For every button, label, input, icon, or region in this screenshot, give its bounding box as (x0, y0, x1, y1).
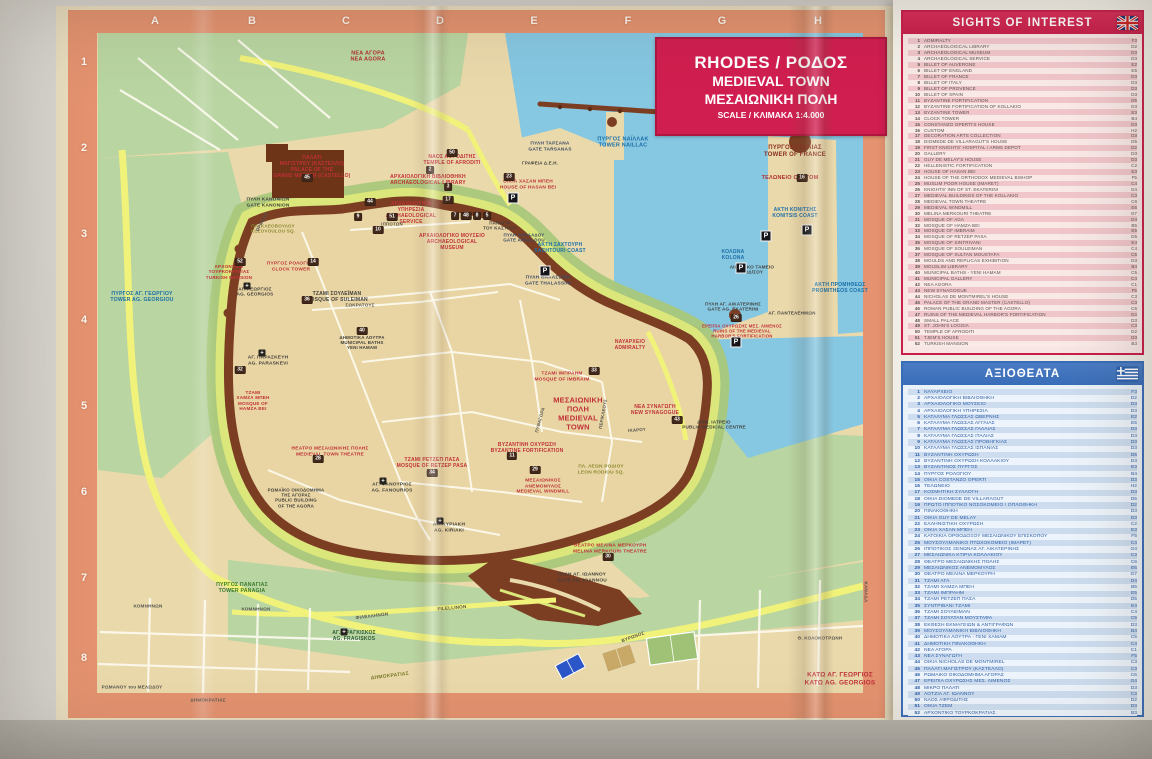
legend-item-name: SMALL PALACE (924, 318, 1124, 323)
legend-item: 26 KNIGHTS' INN OF ST. EKATERINI G4 (908, 186, 1137, 192)
legend-item-number: 7 (908, 74, 920, 79)
legend-item-name: GALLERY (924, 151, 1124, 156)
parking-icon (761, 231, 772, 242)
legend-item-name: ΡΩΜΑΪΚΟ ΟΙΚΟΔΟΜΗΜΑ ΑΓΟΡΑΣ (924, 673, 1124, 678)
legend-item: 27 ΜΕΣΑΙΩΝΙΚΑ ΚΤΙΡΙΑ ΚΟΛΛΑΚΙΟΥ C3 (908, 553, 1137, 559)
legend-item-gridref: D3 (1124, 56, 1137, 61)
sight-number-badge: 14 (308, 259, 318, 266)
legend-item-name: ΚΑΤΑΛΥΜΑ ΓΛΩΣΣΑΣ ΑΓΓΛΙΑΣ (924, 421, 1124, 426)
legend-item: 40 ΔΗΜΟΤΙΚΑ ΛΟΥΤΡΑ - ΓΕΝΙ ΧΑΜΑΜ C5 (908, 635, 1137, 641)
parking-icon (731, 337, 742, 348)
legend-item-name: MELINA MERKOURI THEATRE (924, 211, 1124, 216)
legend-item: 46 ROMAN PUBLIC BUILDING OF THE AGORA C6 (908, 305, 1137, 311)
church-icon (437, 518, 444, 525)
legend-item: 38 ΕΚΘΕΣΗ ΕΚΜΑΓΕΙΩΝ & ΑΝΤΙΓΡΑΦΩΝ D3 (908, 622, 1137, 628)
legend-item-number: 5 (908, 415, 920, 420)
grid-letter: F (625, 15, 632, 27)
legend-item-gridref: D3 (1124, 80, 1137, 85)
legend-item-name: ΔΗΜΟΤΙΚΑ ΛΟΥΤΡΑ - ΓΕΝΙ ΧΑΜΑΜ (924, 635, 1124, 640)
map-scale: SCALE / ΚΛΙΜΑΚΑ 1:4.000 (718, 110, 825, 121)
legend-item-name: RUINS OF THE MEDIEVAL HARBOR'S FORTIFICA… (924, 312, 1124, 317)
legend-item-number: 29 (908, 566, 920, 571)
legend-item-number: 51 (908, 335, 920, 340)
legend-item-number: 19 (908, 503, 920, 508)
legend-item-gridref: E6 (1124, 205, 1137, 210)
legend-item-number: 9 (908, 86, 920, 91)
legend-item-gridref: D3 (1124, 50, 1137, 55)
legend-item: 44 NICHOLAS DE MONTMIREL'S HOUSE C3 (908, 293, 1137, 299)
legend-item-name: ΟΙΚΙΑ ΤΖΕΜ (924, 704, 1124, 709)
legend-item: 35 ΣΥΝΤΡΙΒΑΝΙ ΤΖΑΜΙ E4 (908, 603, 1137, 609)
photo-of-folded-map: ABCDEFGH 12345678 RHODES / ΡΟΔΟΣ MEDIEVA… (0, 0, 1152, 759)
legend-item: 48 SMALL PALACE D3 (908, 317, 1137, 323)
legend-item: 33 ΤΖΑΜΙ ΙΜΠΡΑΗΜ E5 (908, 591, 1137, 597)
legend-item: 36 ΤΖΑΜΙ ΣΟΥΛΕΪΜΑΝ C4 (908, 609, 1137, 615)
legend-item-number: 34 (908, 597, 920, 602)
grid-number: 2 (81, 142, 87, 154)
legend-item-number: 32 (908, 585, 920, 590)
legend-item-name: ΚΑΤΑΛΥΜΑ ΓΛΩΣΣΑΣ ΙΣΠΑΝΙΑΣ (924, 446, 1124, 451)
sight-number-badge: 34 (427, 470, 437, 477)
legend-item: 41 ΔΗΜΟΤΙΚΗ ΠΙΝΑΚΟΘΗΚΗ C4 (908, 641, 1137, 647)
legend-item-number: 48 (908, 686, 920, 691)
grid-number: 8 (81, 652, 87, 664)
legend-item-gridref: G4 (1124, 547, 1137, 552)
legend-item-gridref: B3 (1124, 711, 1137, 716)
legend-item-name: MEDIEVAL WINDMILL (924, 205, 1124, 210)
legend-item-number: 40 (908, 635, 920, 640)
legend-item-number: 51 (908, 704, 920, 709)
legend-item-name: MOSQUE OF AGA (924, 217, 1124, 222)
legend-item-gridref: D3 (1124, 74, 1137, 79)
legend-item-name: BYZANTINE TOWER (924, 110, 1124, 115)
legend-item-name: ΝΑΟΣ ΑΦΡΟΔΙΤΗΣ (924, 698, 1124, 703)
legend-item: 14 CLOCK TOWER B4 (908, 115, 1137, 121)
legend-item-name: ΟΙΚΙΑ NICHOLAS DE MONTMIREL (924, 660, 1124, 665)
legend-item-name: ΝΑΥΑΡΧΕΙΟ (924, 390, 1124, 395)
church-icon (380, 478, 387, 485)
legend-item-gridref: E3 (1124, 465, 1137, 470)
legend-item: 31 ΤΖΑΜΙ ΑΓΑ D4 (908, 578, 1137, 584)
legend-item-number: 15 (908, 478, 920, 483)
legend-item-number: 19 (908, 145, 920, 150)
legend-item-gridref: D5 (1124, 453, 1137, 458)
legend-item-gridref: D3 (1124, 623, 1137, 628)
legend-item-number: 16 (908, 484, 920, 489)
grid-number: 1 (81, 56, 87, 68)
legend-item: 43 ΝΕΑ ΣΥΝΑΓΩΓΗ F5 (908, 653, 1137, 659)
legend-item-name: MOSQUE OF RETZEP PASA (924, 234, 1124, 239)
legend-item: 2 ARCHAEOLOGICAL LIBRARY D2 (908, 44, 1137, 50)
legend-item: 28 MEDIEVAL TOWN THEATRE C6 (908, 198, 1137, 204)
legend-item-number: 28 (908, 560, 920, 565)
legend-item-gridref: D3 (1124, 459, 1137, 464)
legend-item-number: 14 (908, 472, 920, 477)
grid-number: 3 (81, 228, 87, 240)
legend-item-number: 11 (908, 453, 920, 458)
legend-item: 11 BYZANTINE FORTIFICATION D5 (908, 97, 1137, 103)
grid-letter: H (814, 15, 822, 27)
legend-item-name: ST. JOHN'S LOGGIA (924, 323, 1124, 328)
legend-item-number: 26 (908, 547, 920, 552)
legend-item: 3 ΑΡΧΑΙΟΛΟΓΙΚΟ ΜΟΥΣΕΙΟ D3 (908, 402, 1137, 408)
grid-letter: E (530, 15, 537, 27)
legend-item: 15 CONSTANZO OPERTI'S HOUSE D3 (908, 121, 1137, 127)
legend-item-name: ΟΙΚΙΑ DIOMEDE DE VILLARAGUT (924, 497, 1124, 502)
sight-number-badge: 32 (235, 367, 245, 374)
legend-item-name: ARCHAEOLOGICAL MUSEUM (924, 50, 1124, 55)
sight-number-badge: 11 (507, 453, 516, 460)
sight-number-badge: 29 (530, 467, 540, 474)
legend-item: 41 MUNICIPAL GALLERY C4 (908, 276, 1137, 282)
legend-item-number: 46 (908, 306, 920, 311)
church-icon (259, 350, 266, 357)
legend-item-gridref: C5 (1124, 270, 1137, 275)
legend-item-name: ΔΗΜΟΤΙΚΗ ΠΙΝΑΚΟΘΗΚΗ (924, 642, 1124, 647)
sight-number-badge: 28 (313, 456, 323, 463)
legend-item-gridref: B4 (1124, 472, 1137, 477)
legend-item: 6 BILLET OF ENGLAND E5 (908, 68, 1137, 74)
legend-item-gridref: G4 (1124, 312, 1137, 317)
legend-item-name: MOULDS AND REPLICAS EXHIBITION (924, 258, 1124, 263)
legend-item-gridref: B4 (1124, 629, 1137, 634)
grid-letter: G (718, 15, 727, 27)
legend-item: 1 ADMIRALTY F3 (908, 38, 1137, 44)
sight-number-badge: 43 (672, 417, 682, 424)
legend-item: 24 ΚΑΤΟΙΚΙΑ ΟΡΘΟΔΟΞΟΥ ΜΕΣΑΙΩΝΙΚΟΥ ΕΠΙΣΚΟ… (908, 534, 1137, 540)
legend-item-name: BYZANTINE FORTIFICATION OF KOLLAKIO (924, 104, 1124, 109)
legend-item-gridref: B5 (1124, 585, 1137, 590)
legend-item-number: 11 (908, 98, 920, 103)
legend-item: 33 MOSQUE OF IMBRAIM E5 (908, 228, 1137, 234)
legend-item-number: 3 (908, 50, 920, 55)
legend-item-number: 33 (908, 591, 920, 596)
legend-sights-of-interest: SIGHTS OF INTEREST 1 ADMIRALTY F3 (901, 10, 1144, 355)
legend-item-name: ΠΥΡΓΟΣ ΡΟΛΟΓΙΟΥ (924, 472, 1124, 477)
legend-item-name: ΤΖΑΜΙ ΧΑΜΖΑ ΜΠΕΗ (924, 585, 1124, 590)
sight-number-badge: 40 (357, 328, 367, 335)
legend-item: 32 ΤΖΑΜΙ ΧΑΜΖΑ ΜΠΕΗ B5 (908, 584, 1137, 590)
sight-number-badge: 44 (365, 199, 375, 206)
legend-item-number: 3 (908, 402, 920, 407)
legend-item-gridref: E3 (1124, 528, 1137, 533)
legend-item-name: MOUSLIM LIBRARY (924, 264, 1124, 269)
sight-number-badge: 2 (427, 167, 434, 174)
legend-item-gridref: B5 (1124, 223, 1137, 228)
legend-item: 29 MEDIEVAL WINDMILL E6 (908, 204, 1137, 210)
legend-item: 20 ΠΙΝΑΚΟΘΗΚΗ D3 (908, 509, 1137, 515)
legend-item-gridref: D3 (1124, 509, 1137, 514)
legend-item-name: CLOCK TOWER (924, 116, 1124, 121)
sight-number-badge: 9 (355, 214, 362, 221)
legend-item-name: ΤΖΑΜΙ ΣΟΥΛΕΪΜΑΝ (924, 610, 1124, 615)
table-surface (0, 720, 1152, 759)
legend-item-gridref: C6 (1124, 306, 1137, 311)
legend-item-number: 41 (908, 276, 920, 281)
legend-item-gridref: B4 (1124, 116, 1137, 121)
sight-number-badge: 50 (447, 150, 457, 157)
sight-number-badge: 5 (484, 213, 491, 220)
legend-item-number: 50 (908, 698, 920, 703)
legend-item: 30 ΘΕΑΤΡΟ ΜΕΛΙΝΑ ΜΕΡΚΟΥΡΗ G7 (908, 572, 1137, 578)
legend-item-gridref: C4 (1124, 610, 1137, 615)
legend-item: 30 MELINA MERKOURI THEATRE G7 (908, 210, 1137, 216)
legend-item: 19 FIRST KNIGHTS' HOSPITAL / ARMS DEPOT … (908, 145, 1137, 151)
legend-item: 38 MOULDS AND REPLICAS EXHIBITION D3 (908, 258, 1137, 264)
legend-item: 7 ΚΑΤΑΛΥΜΑ ΓΛΩΣΣΑΣ ΓΑΛΛΙΑΣ D3 (908, 427, 1137, 433)
legend-item-gridref: D3 (1124, 434, 1137, 439)
legend-item-number: 4 (908, 56, 920, 61)
legend-item-number: 14 (908, 116, 920, 121)
legend-item-number: 29 (908, 205, 920, 210)
legend-item-number: 43 (908, 654, 920, 659)
legend-item: 43 NEW SYNAGOGUE F5 (908, 287, 1137, 293)
legend-item-number: 13 (908, 110, 920, 115)
legend-item-gridref: C6 (1124, 673, 1137, 678)
legend-item-number: 36 (908, 610, 920, 615)
legend-item-gridref: C5 (1124, 252, 1137, 257)
map-title-box: RHODES / ΡΟΔΟΣ MEDIEVAL TOWN ΜΕΣΑΙΩΝΙΚΗ … (655, 37, 887, 136)
legend-item-gridref: D3 (1124, 104, 1137, 109)
legend-item-gridref: C1 (1124, 648, 1137, 653)
legend-item-name: ΠΑΛΑΤΙ ΜΑΓΙΣΤΡΟΥ (ΚΑΣΤΕΛΛΟ) (924, 667, 1124, 672)
legend-item-name: ΒΥΖΑΝΤΙΝΗ ΟΧΥΡΩΣΗ (924, 453, 1124, 458)
legend-item-gridref: C3 (1124, 667, 1137, 672)
legend-item: 35 MOSQUE OF SINTRIVANI E4 (908, 240, 1137, 246)
legend-item-name: ΚΑΤΑΛΥΜΑ ΓΛΩΣΣΑΣ ΩΒΕΡΝΗΣ (924, 415, 1124, 420)
legend-item-number: 31 (908, 217, 920, 222)
legend-item: 22 HELLENISTIC FORTIFICATION C2 (908, 163, 1137, 169)
legend-en-title: SIGHTS OF INTEREST (952, 17, 1092, 29)
legend-item-gridref: C3 (1124, 553, 1137, 558)
sight-number-badge: 17 (443, 197, 453, 204)
grid-number: 7 (81, 572, 87, 584)
legend-item-name: ΕΛΛΗΝΙΣΤΙΚΗ ΟΧΥΡΩΣΗ (924, 522, 1124, 527)
legend-item-name: ΤΖΑΜΙ ΑΓΑ (924, 579, 1124, 584)
legend-item-gridref: H2 (1124, 484, 1137, 489)
legend-item-gridref: D3 (1124, 402, 1137, 407)
legend-item-number: 1 (908, 390, 920, 395)
legend-item-name: ΕΡΕΙΠΙΑ ΟΧΥΡΩΣΗΣ ΜΕΣ. ΛΙΜΕΝΟΣ (924, 679, 1124, 684)
legend-item-number: 15 (908, 122, 920, 127)
legend-item-name: ΚΟΣΜΗΤΙΚΗ ΣΥΛΛΟΓΗ (924, 490, 1124, 495)
legend-item: 10 ΚΑΤΑΛΥΜΑ ΓΛΩΣΣΑΣ ΙΣΠΑΝΙΑΣ D3 (908, 446, 1137, 452)
legend-item-number: 6 (908, 68, 920, 73)
legend-item-number: 45 (908, 300, 920, 305)
legend-item-gridref: D5 (1124, 597, 1137, 602)
legend-item-gridref: C3 (1124, 300, 1137, 305)
legend-item-gridref: D5 (1124, 139, 1137, 144)
legend-item-number: 10 (908, 446, 920, 451)
legend-item: 37 ΤΖΑΜΙ ΣΟΥΛΤΑΝ ΜΟΥΣΤΑΦΑ C5 (908, 616, 1137, 622)
legend-item-name: TJEM'S HOUSE (924, 335, 1124, 340)
legend-item-number: 8 (908, 434, 920, 439)
legend-item: 45 PALACE OF THE GRAND MASTER (CASTELLO)… (908, 299, 1137, 305)
legend-item-number: 13 (908, 465, 920, 470)
legend-item-gridref: D2 (1124, 44, 1137, 49)
legend-item-gridref: D4 (1124, 579, 1137, 584)
sight-number-badge: 51 (387, 214, 397, 221)
legend-item-number: 20 (908, 151, 920, 156)
legend-item-number: 30 (908, 211, 920, 216)
legend-item-name: ΜΟΥΣΟΥΛΜΑΝΙΚΗ ΒΙΒΛΙΟΘΗΚΗ (924, 629, 1124, 634)
greece-flag-icon (1117, 367, 1138, 381)
legend-item-gridref: C1 (1124, 282, 1137, 287)
sight-number-badge: 33 (589, 368, 599, 375)
legend-item-gridref: E5 (1124, 421, 1137, 426)
legend-item: 17 DECORATION ARTS COLLECTION D3 (908, 133, 1137, 139)
legend-item-number: 52 (908, 711, 920, 716)
legend-item-name: ΟΙΚΙΑ ΧΑΣΑΝ ΜΠΕΗ (924, 528, 1124, 533)
legend-item-name: BYZANTINE FORTIFICATION (924, 98, 1124, 103)
map-subtitle-gr: ΜΕΣΑΙΩΝΙΚΗ ΠΟΛΗ (705, 91, 838, 109)
legend-item-number: 44 (908, 660, 920, 665)
legend-item-name: ΤΖΑΜΙ ΡΕΤΖΕΠ ΠΑΣΑ (924, 597, 1124, 602)
legend-item-number: 20 (908, 509, 920, 514)
legend-item-name: MUNICIPAL BATHS - YENI HAMAM (924, 270, 1124, 275)
legend-item-name: GUY DE MELAY'S HOUSE (924, 157, 1124, 162)
legend-item-gridref: C4 (1124, 181, 1137, 186)
legend-item-gridref: E2 (1124, 62, 1137, 67)
legend-item-gridref: D3 (1124, 318, 1137, 323)
legend-item: 21 ΟΙΚΙΑ GUY DE MELAY D3 (908, 515, 1137, 521)
legend-item: 9 ΚΑΤΑΛΥΜΑ ΓΛΩΣΣΑΣ ΠΡΟΒΗΓΚΙΑΣ D3 (908, 439, 1137, 445)
legend-item-number: 38 (908, 623, 920, 628)
legend-item-number: 7 (908, 427, 920, 432)
legend-item: 42 NEA AGORA C1 (908, 281, 1137, 287)
sight-number-badge: 26 (731, 315, 741, 322)
legend-item-name: ΟΙΚΙΑ GUY DE MELAY (924, 516, 1124, 521)
legend-item-name: ΠΙΝΑΚΟΘΗΚΗ (924, 509, 1124, 514)
legend-item: 49 ΛΟΤΖΙΑ ΑΓ. ΙΩΑΝΝΟΥ C3 (908, 691, 1137, 697)
legend-item-number: 49 (908, 323, 920, 328)
legend-item-name: MOSQUE OF SULTAN MOUSTAFA (924, 252, 1124, 257)
legend-item-number: 52 (908, 341, 920, 346)
legend-item: 14 ΠΥΡΓΟΣ ΡΟΛΟΓΙΟΥ B4 (908, 471, 1137, 477)
legend-item-name: NICHOLAS DE MONTMIREL'S HOUSE (924, 294, 1124, 299)
legend-item-number: 17 (908, 490, 920, 495)
legend-item-number: 47 (908, 679, 920, 684)
legend-item: 39 MOUSLIM LIBRARY B4 (908, 264, 1137, 270)
legend-item-name: ΠΡΩΤΟ ΙΠΠΟΤΙΚΟ ΝΟΣΟΚΟΜΕΙΟ / ΟΠΛΟΘΗΚΗ (924, 503, 1124, 508)
legend-item-name: BILLET OF FRANCE (924, 74, 1124, 79)
legend-item-number: 25 (908, 181, 920, 186)
legend-item: 25 ΜΟΥΣΟΥΛΜΑΝΙΚΟ ΠΤΩΧΟΚΟΜΕΙΟ (ΙΜΑΡΕΤ) C4 (908, 540, 1137, 546)
legend-item-name: ΛΟΤΖΙΑ ΑΓ. ΙΩΑΝΝΟΥ (924, 692, 1124, 697)
legend-item-name: MUSLIM POOR HOUSE (IMARET) (924, 181, 1124, 186)
legend-item: 29 ΜΕΣΑΙΩΝΙΚΟΣ ΑΝΕΜΟΜΥΛΟΣ E6 (908, 565, 1137, 571)
legend-item-gridref: C5 (1124, 616, 1137, 621)
grid-letter: C (342, 15, 350, 27)
legend-item: 10 BILLET OF SPAIN D3 (908, 91, 1137, 97)
legend-item-number: 12 (908, 459, 920, 464)
legend-item: 22 ΕΛΛΗΝΙΣΤΙΚΗ ΟΧΥΡΩΣΗ C2 (908, 521, 1137, 527)
legend-item-number: 8 (908, 80, 920, 85)
legend-item-number: 49 (908, 692, 920, 697)
legend-item-number: 6 (908, 421, 920, 426)
legend-item-name: BILLET OF PROVENCE (924, 86, 1124, 91)
legend-item: 1 ΝΑΥΑΡΧΕΙΟ F3 (908, 389, 1137, 395)
legend-item-name: ΚΑΤΟΙΚΙΑ ΟΡΘΟΔΟΞΟΥ ΜΕΣΑΙΩΝΙΚΟΥ ΕΠΙΣΚΟΠΟΥ (924, 534, 1124, 539)
legend-item-gridref: G4 (1124, 187, 1137, 192)
legend-item-name: ΜΟΥΣΟΥΛΜΑΝΙΚΟ ΠΤΩΧΟΚΟΜΕΙΟ (ΙΜΑΡΕΤ) (924, 541, 1124, 546)
legend-item-number: 30 (908, 572, 920, 577)
legend-item-name: ΣΥΝΤΡΙΒΑΝΙ ΤΖΑΜΙ (924, 604, 1124, 609)
legend-item-gridref: C4 (1124, 246, 1137, 251)
grid-number: 5 (81, 400, 87, 412)
legend-item-number: 21 (908, 516, 920, 521)
legend-item-gridref: D4 (1124, 217, 1137, 222)
legend-item-name: ARCHAEOLOGICAL LIBRARY (924, 44, 1124, 49)
legend-en-rows: 1 ADMIRALTY F3 2 ARCHAEOLOGICAL LIBRARY … (903, 34, 1142, 349)
legend-item-gridref: F3 (1124, 38, 1137, 43)
legend-item-name: HELLENISTIC FORTIFICATION (924, 163, 1124, 168)
sight-number-badge: 23 (504, 174, 514, 181)
legend-item-name: ΘΕΑΤΡΟ ΜΕΛΙΝΑ ΜΕΡΚΟΥΡΗ (924, 572, 1124, 577)
legend-item: 39 ΜΟΥΣΟΥΛΜΑΝΙΚΗ ΒΙΒΛΙΟΘΗΚΗ B4 (908, 628, 1137, 634)
legend-item-name: ΕΚΘΕΣΗ ΕΚΜΑΓΕΙΩΝ & ΑΝΤΙΓΡΑΦΩΝ (924, 623, 1124, 628)
legend-item-gridref: C3 (1124, 193, 1137, 198)
legend-item-name: ΘΕΑΤΡΟ ΜΕΣΑΙΩΝΙΚΗΣ ΠΟΛΗΣ (924, 560, 1124, 565)
legend-item-number: 48 (908, 318, 920, 323)
legend-item: 19 ΠΡΩΤΟ ΙΠΠΟΤΙΚΟ ΝΟΣΟΚΟΜΕΙΟ / ΟΠΛΟΘΗΚΗ … (908, 502, 1137, 508)
legend-item: 48 ΜΙΚΡΟ ΠΑΛΑΤΙ D3 (908, 685, 1137, 691)
legend-item: 25 MUSLIM POOR HOUSE (IMARET) C4 (908, 181, 1137, 187)
legend-item-gridref: C4 (1124, 276, 1137, 281)
legend-item-name: PALACE OF THE GRAND MASTER (CASTELLO) (924, 300, 1124, 305)
legend-item-name: ΙΠΠΟΤΙΚΟΣ ΞΕΝΩΝΑΣ ΑΓ. ΑΙΚΑΤΕΡΙΝΗΣ (924, 547, 1124, 552)
legend-item: 46 ΡΩΜΑΪΚΟ ΟΙΚΟΔΟΜΗΜΑ ΑΓΟΡΑΣ C6 (908, 672, 1137, 678)
legend-item-gridref: D2 (1124, 503, 1137, 508)
legend-item-number: 28 (908, 199, 920, 204)
legend-item-gridref: D3 (1124, 686, 1137, 691)
legend-item-number: 18 (908, 497, 920, 502)
map-title: RHODES / ΡΟΔΟΣ (694, 52, 847, 73)
legend-item-number: 26 (908, 187, 920, 192)
legend-item-name: MOSQUE OF IMBRAIM (924, 228, 1124, 233)
legend-item-gridref: D3 (1124, 516, 1137, 521)
legend-item-number: 50 (908, 329, 920, 334)
legend-item: 5 BILLET OF AUVERGNE E2 (908, 62, 1137, 68)
legend-item-number: 24 (908, 534, 920, 539)
legend-item: 20 GALLERY D3 (908, 151, 1137, 157)
legend-item: 34 ΤΖΑΜΙ ΡΕΤΖΕΠ ΠΑΣΑ D5 (908, 597, 1137, 603)
legend-item-number: 23 (908, 169, 920, 174)
legend-item-gridref: D2 (1124, 145, 1137, 150)
legend-item-name: ΒΥΖΑΝΤΙΝΗ ΟΧΥΡΩΣΗ ΚΟΛΛΑΚΙΟΥ (924, 459, 1124, 464)
legend-item-gridref: D5 (1124, 98, 1137, 103)
legend-item-number: 22 (908, 522, 920, 527)
legend-item: 28 ΘΕΑΤΡΟ ΜΕΣΑΙΩΝΙΚΗΣ ΠΟΛΗΣ C6 (908, 559, 1137, 565)
legend-item: 45 ΠΑΛΑΤΙ ΜΑΓΙΣΤΡΟΥ (ΚΑΣΤΕΛΛΟ) C3 (908, 666, 1137, 672)
legend-item-number: 39 (908, 264, 920, 269)
legend-item-gridref: D3 (1124, 478, 1137, 483)
legend-item-name: ΒΥΖΑΝΤΙΝΟΣ ΠΥΡΓΟΣ (924, 465, 1124, 470)
uk-flag-icon (1117, 16, 1138, 30)
legend-item-gridref: G4 (1124, 679, 1137, 684)
legend-item: 37 MOSQUE OF SULTAN MOUSTAFA C5 (908, 252, 1137, 258)
legend-item: 52 ΑΡΧΟΝΤΙΚΟ ΤΟΥΡΚΟΚΡΑΤΙΑΣ B3 (908, 710, 1137, 716)
legend-item-name: TURKISH MANSION (924, 341, 1124, 346)
legend-item-number: 36 (908, 246, 920, 251)
legend-item-number: 24 (908, 175, 920, 180)
legend-item-gridref: D3 (1124, 157, 1137, 162)
legend-item-name: ΑΡΧΑΙΟΛΟΓΙΚΗ ΒΙΒΛΙΟΘΗΚΗ (924, 396, 1124, 401)
legend-item-number: 46 (908, 673, 920, 678)
legend-item-gridref: D5 (1124, 497, 1137, 502)
legend-item: 36 MOSQUE OF SOULEIMAN C4 (908, 246, 1137, 252)
legend-item-name: BILLET OF ENGLAND (924, 68, 1124, 73)
